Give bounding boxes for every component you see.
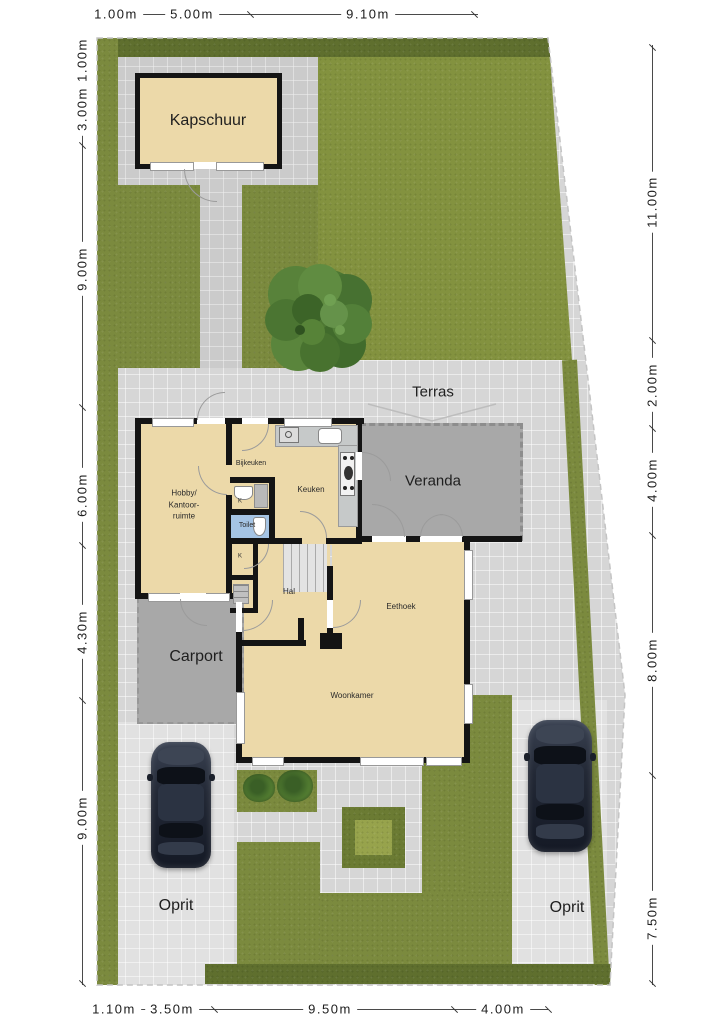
kapschuur-window xyxy=(216,162,264,171)
garden-path xyxy=(200,185,242,368)
dim-left-1: 1.00m xyxy=(75,33,90,87)
wall xyxy=(236,640,306,646)
site-plan: Kapschuur Terras Veranda Carport Oprit O… xyxy=(0,0,724,1024)
window xyxy=(152,418,194,427)
terras-label: Terras xyxy=(412,384,454,401)
burner-icon xyxy=(350,486,354,490)
window xyxy=(236,692,245,744)
car-hood xyxy=(158,747,204,765)
burner-icon xyxy=(350,456,354,460)
car-trunk xyxy=(536,824,585,839)
wall xyxy=(298,618,304,646)
wall xyxy=(326,538,362,544)
grass-left-of-path xyxy=(118,185,200,368)
window xyxy=(284,418,332,427)
burner-icon xyxy=(343,486,347,490)
woonkamer-label: Woonkamer xyxy=(331,690,374,702)
closet-label-bottom: K xyxy=(238,553,242,562)
toilet-label: Toilet xyxy=(239,521,255,531)
grass-right-of-path xyxy=(242,185,318,368)
bijkeuken-label: Bijkeuken xyxy=(236,459,266,469)
dishwasher-glass-icon xyxy=(285,431,292,438)
keuken-label: Keuken xyxy=(297,484,324,496)
wall xyxy=(135,418,141,599)
window xyxy=(360,757,424,766)
car-roof xyxy=(158,784,204,822)
window xyxy=(464,684,473,724)
car-left xyxy=(151,742,211,868)
grass-front-left xyxy=(237,842,320,966)
window xyxy=(464,550,473,600)
hedge-bottom xyxy=(205,964,697,984)
dim-top-1: 1.00m xyxy=(89,7,143,22)
planter-inner xyxy=(355,820,392,855)
grass-beside-house xyxy=(467,695,512,893)
stove-oval-icon xyxy=(344,466,353,480)
wall xyxy=(327,628,333,644)
car-mirror xyxy=(147,774,152,782)
shower-icon xyxy=(254,484,268,508)
dim-bottom-2: 3.50m xyxy=(145,1002,199,1017)
eethoek-label: Eethoek xyxy=(386,601,415,613)
grass-left-strip xyxy=(97,38,118,985)
car-right xyxy=(528,720,592,852)
oprit-left-label: Oprit xyxy=(159,897,194,915)
car-trunk xyxy=(158,842,204,856)
carport-label: Carport xyxy=(169,648,222,666)
kapschuur-label: Kapschuur xyxy=(170,112,247,130)
grass-front-band xyxy=(320,893,512,966)
closet-label-top: K xyxy=(238,498,242,507)
grass-back-garden xyxy=(318,57,572,360)
dimension-line-top xyxy=(100,14,478,15)
washbasin-icon xyxy=(234,486,253,500)
kapschuur-door-opening xyxy=(194,162,216,169)
dim-right-4: 8.00m xyxy=(645,633,660,687)
hedge-top xyxy=(97,38,555,57)
dim-left-3: 9.00m xyxy=(75,242,90,296)
car-roof xyxy=(536,764,585,804)
dim-right-2: 2.00m xyxy=(645,358,660,412)
staircase xyxy=(283,544,327,592)
living-room-floor xyxy=(239,643,465,761)
car-windshield xyxy=(534,746,585,764)
car-mirror xyxy=(209,774,214,782)
car-windshield xyxy=(157,767,205,785)
car-rear-window xyxy=(536,804,583,820)
dim-left-2: 3.00m xyxy=(75,82,90,136)
hal-label: Hal xyxy=(283,586,295,598)
window xyxy=(426,757,462,766)
hobby-room-label: Hobby/ Kantoor- ruimte xyxy=(169,488,200,523)
car-rear-window xyxy=(159,823,203,838)
dim-bottom-4: 4.00m xyxy=(476,1002,530,1017)
dim-top-2: 5.00m xyxy=(165,7,219,22)
sink-icon xyxy=(318,428,342,444)
wall xyxy=(327,566,333,600)
car-mirror xyxy=(524,753,530,761)
car-mirror xyxy=(590,753,596,761)
dim-right-5: 7.50m xyxy=(645,891,660,945)
dim-left-6: 9.00m xyxy=(75,791,90,845)
dim-bottom-3: 9.50m xyxy=(303,1002,357,1017)
wall xyxy=(230,575,258,580)
dim-top-3: 9.10m xyxy=(341,7,395,22)
window xyxy=(252,757,284,766)
dim-left-4: 6.00m xyxy=(75,468,90,522)
veranda-label: Veranda xyxy=(405,473,461,490)
bush xyxy=(277,770,313,802)
dim-left-5: 4.30m xyxy=(75,605,90,659)
wall xyxy=(226,418,232,465)
dim-right-3: 4.00m xyxy=(645,453,660,507)
dim-right-1: 11.00m xyxy=(645,171,660,232)
grass-below-house xyxy=(422,763,467,893)
burner-icon xyxy=(343,456,347,460)
bush xyxy=(243,774,275,802)
car-hood xyxy=(536,725,585,743)
dim-bottom-1: 1.10m xyxy=(87,1002,141,1017)
oprit-right-label: Oprit xyxy=(550,899,585,917)
